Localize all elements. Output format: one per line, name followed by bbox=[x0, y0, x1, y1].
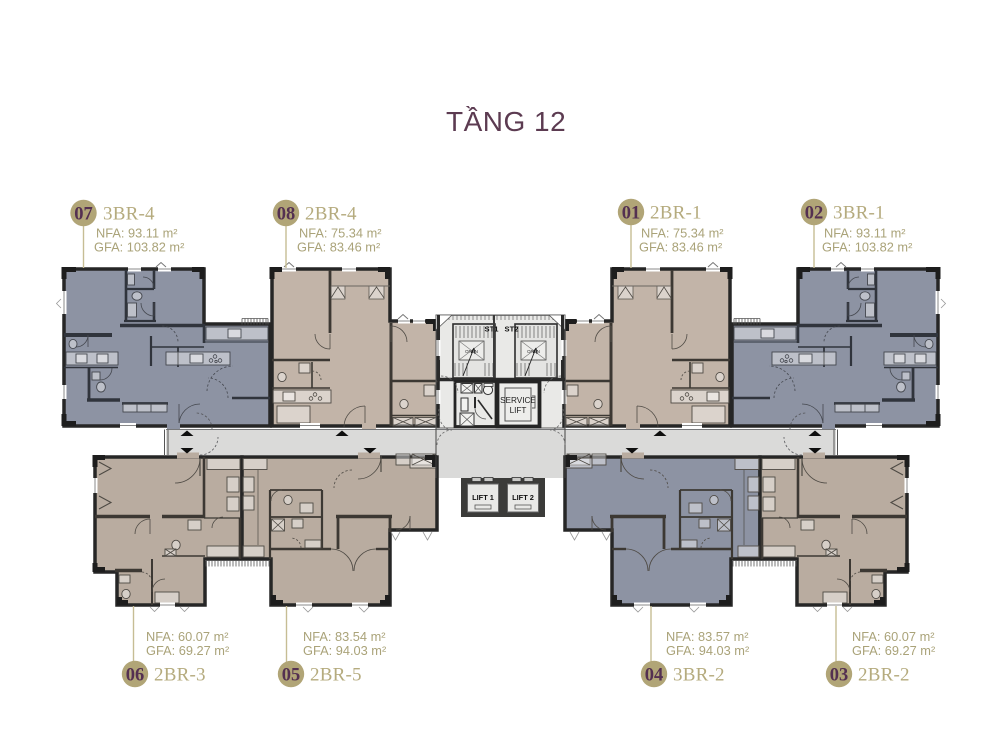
svg-text:GFA: 69.27 m²: GFA: 69.27 m² bbox=[146, 643, 230, 658]
svg-text:02: 02 bbox=[805, 204, 824, 224]
svg-text:06: 06 bbox=[126, 666, 145, 686]
svg-text:GFA: 103.82 m²: GFA: 103.82 m² bbox=[822, 240, 913, 255]
svg-text:GFA: 83.46 m²: GFA: 83.46 m² bbox=[297, 240, 381, 255]
svg-text:NFA: 75.34 m²: NFA: 75.34 m² bbox=[641, 226, 724, 241]
svg-text:LIFT: LIFT bbox=[510, 406, 527, 415]
svg-text:NFA: 60.07 m²: NFA: 60.07 m² bbox=[146, 629, 229, 644]
svg-text:SERVICE: SERVICE bbox=[500, 396, 536, 405]
svg-text:NFA: 75.34 m²: NFA: 75.34 m² bbox=[299, 226, 382, 241]
svg-text:2BR-4: 2BR-4 bbox=[305, 204, 357, 225]
svg-text:GFA: 94.03 m²: GFA: 94.03 m² bbox=[303, 643, 387, 658]
svg-text:05: 05 bbox=[282, 666, 301, 686]
svg-text:03: 03 bbox=[830, 666, 849, 686]
svg-text:GFA: 69.27 m²: GFA: 69.27 m² bbox=[852, 643, 936, 658]
svg-text:01: 01 bbox=[622, 204, 641, 224]
svg-text:3BR-1: 3BR-1 bbox=[833, 203, 885, 224]
svg-text:2BR-1: 2BR-1 bbox=[650, 203, 702, 224]
svg-text:08: 08 bbox=[277, 205, 296, 225]
svg-text:ST2: ST2 bbox=[505, 325, 519, 334]
svg-text:2BR-3: 2BR-3 bbox=[154, 665, 206, 686]
svg-text:04: 04 bbox=[645, 666, 664, 686]
svg-text:NFA: 83.57 m²: NFA: 83.57 m² bbox=[666, 629, 749, 644]
svg-text:ST1: ST1 bbox=[485, 325, 500, 334]
svg-text:GFA: 103.82 m²: GFA: 103.82 m² bbox=[94, 240, 185, 255]
svg-text:GFA: 94.03 m²: GFA: 94.03 m² bbox=[666, 643, 750, 658]
svg-text:NFA: 93.11 m²: NFA: 93.11 m² bbox=[96, 226, 178, 241]
svg-text:NFA: 83.54 m²: NFA: 83.54 m² bbox=[303, 629, 386, 644]
svg-text:2BR-5: 2BR-5 bbox=[310, 665, 362, 686]
svg-text:2BR-2: 2BR-2 bbox=[858, 665, 910, 686]
svg-text:07: 07 bbox=[74, 205, 93, 225]
svg-text:3BR-4: 3BR-4 bbox=[103, 204, 155, 225]
svg-text:3BR-2: 3BR-2 bbox=[673, 665, 725, 686]
svg-text:NFA: 93.11 m²: NFA: 93.11 m² bbox=[824, 226, 906, 241]
svg-text:TẦNG 12: TẦNG 12 bbox=[446, 106, 566, 137]
svg-text:GFA: 83.46 m²: GFA: 83.46 m² bbox=[639, 240, 723, 255]
svg-text:LIFT 1: LIFT 1 bbox=[472, 493, 494, 502]
svg-text:NFA: 60.07 m²: NFA: 60.07 m² bbox=[852, 629, 935, 644]
svg-text:LIFT 2: LIFT 2 bbox=[512, 493, 534, 502]
